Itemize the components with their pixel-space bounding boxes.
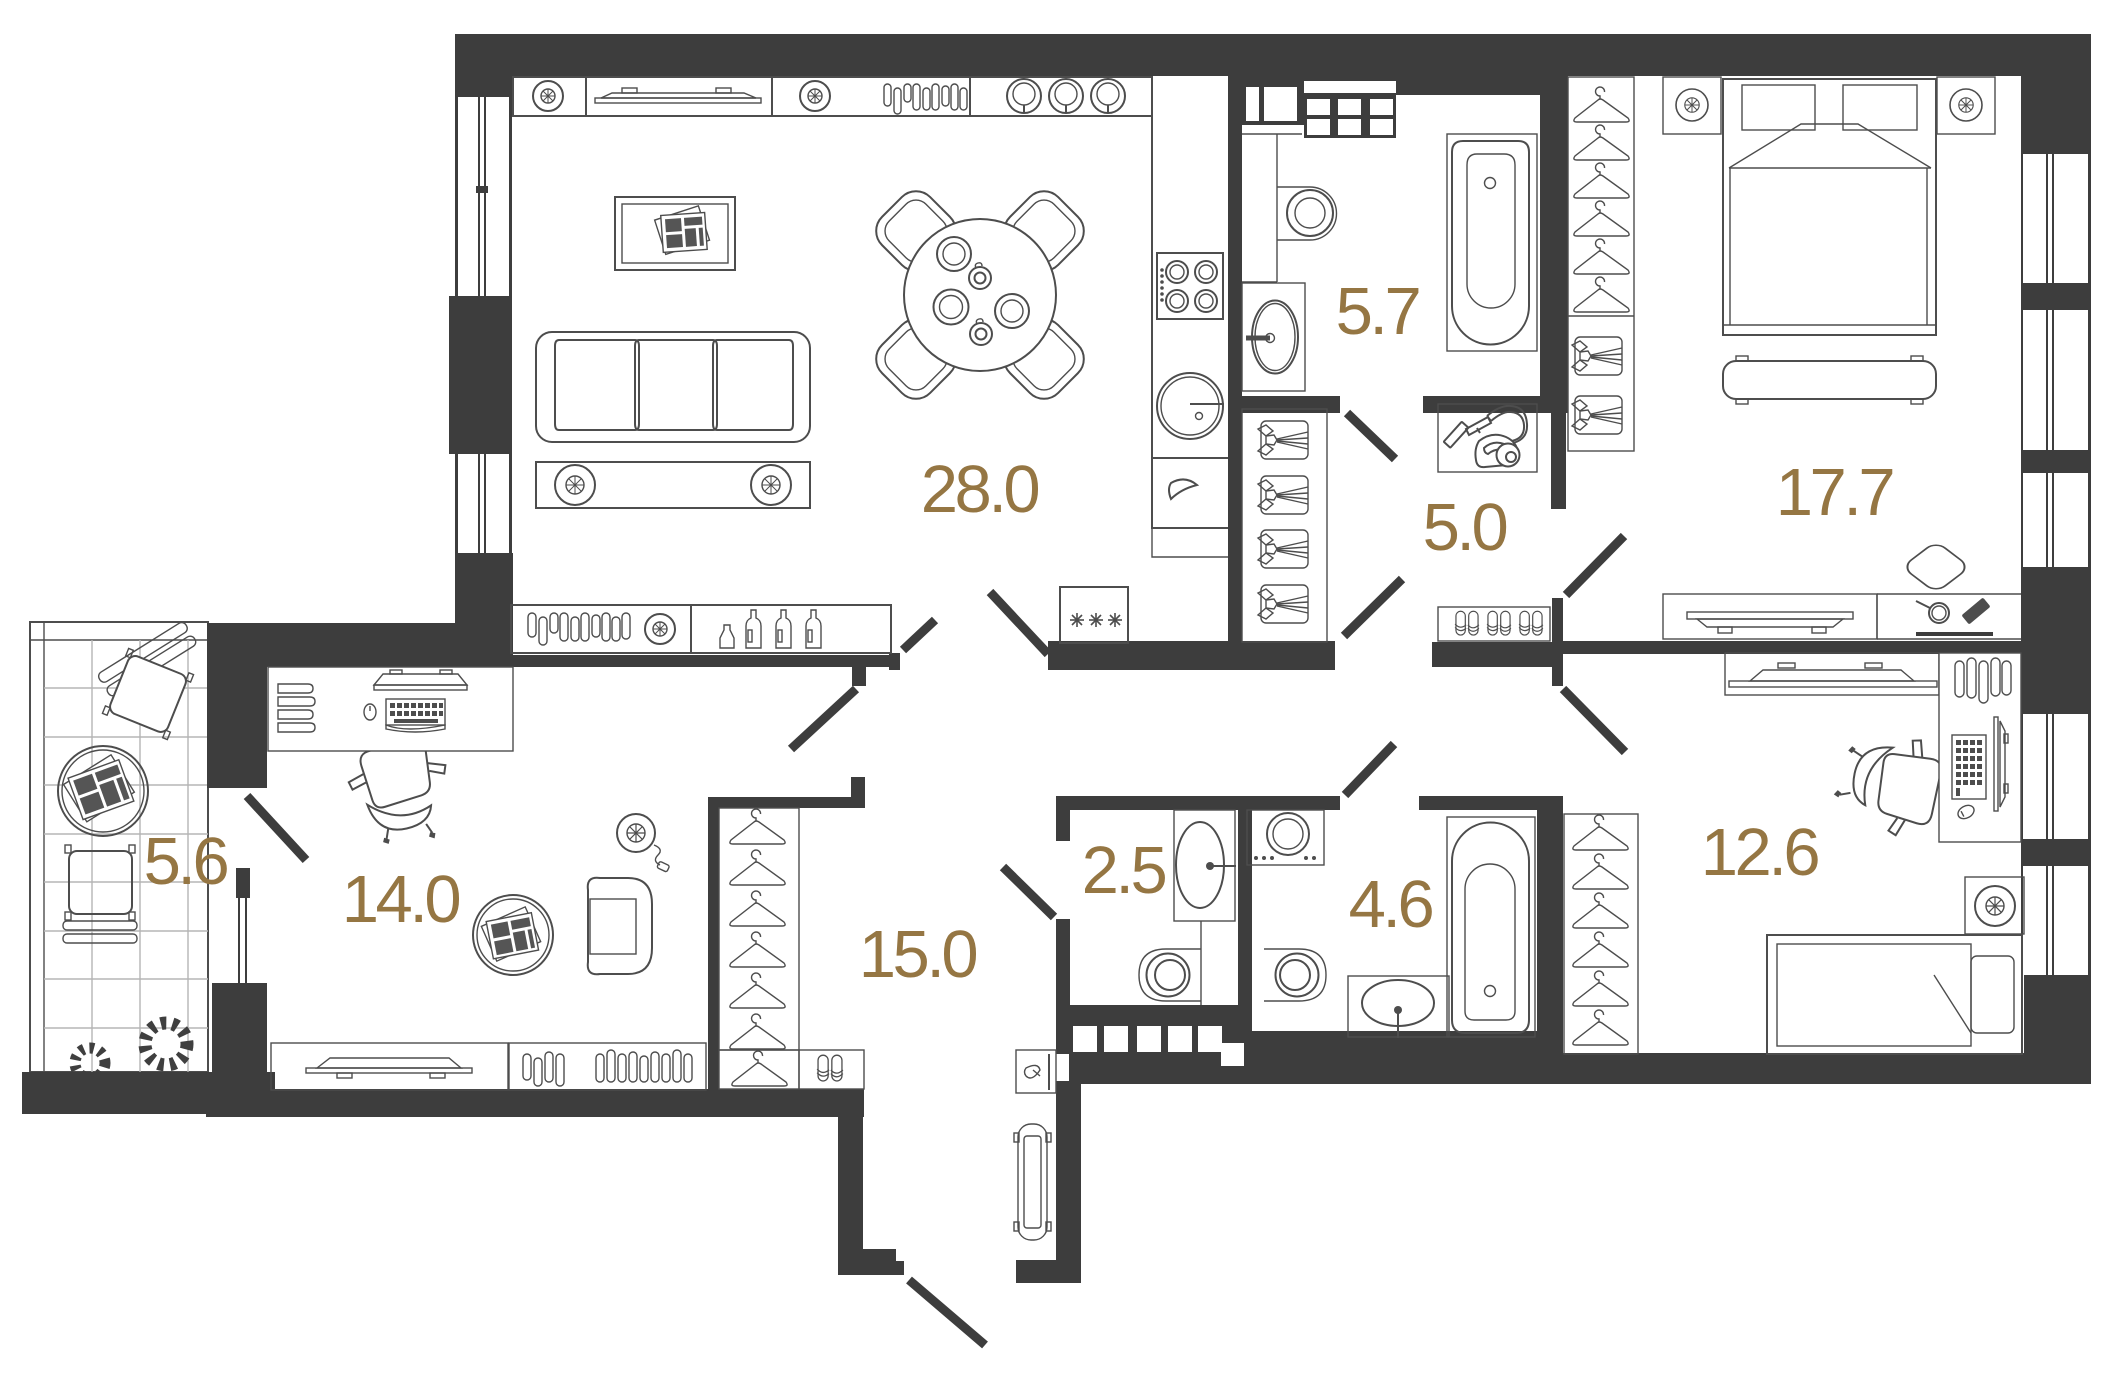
svg-text:5.6: 5.6 [144, 824, 228, 899]
svg-text:28.0: 28.0 [921, 452, 1039, 527]
svg-text:2.5: 2.5 [1082, 833, 1166, 908]
svg-text:4.6: 4.6 [1349, 867, 1433, 942]
svg-text:12.6: 12.6 [1701, 815, 1819, 890]
svg-text:14.0: 14.0 [342, 862, 460, 937]
svg-text:17.7: 17.7 [1776, 455, 1893, 530]
svg-text:5.0: 5.0 [1423, 490, 1507, 565]
svg-text:15.0: 15.0 [859, 917, 977, 992]
svg-text:5.7: 5.7 [1336, 274, 1419, 349]
